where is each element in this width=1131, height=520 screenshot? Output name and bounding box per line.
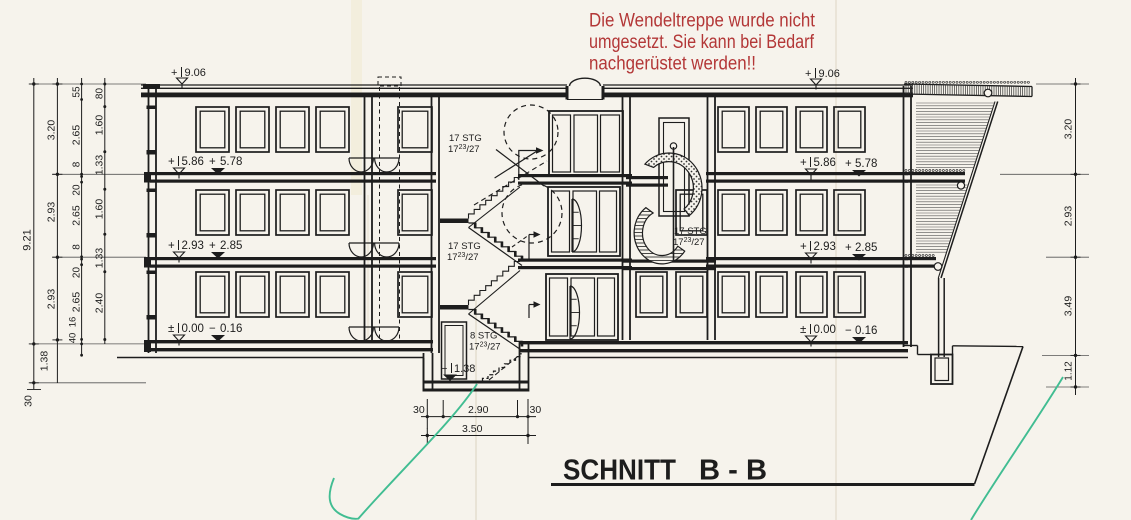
svg-text:1.38: 1.38 [39,351,51,372]
svg-text:20: 20 [72,184,83,196]
svg-text:2.93: 2.93 [814,241,836,253]
svg-text:+: + [800,157,807,169]
svg-text:1.60: 1.60 [94,115,106,136]
svg-text:1.38: 1.38 [454,363,475,375]
svg-text:+: + [168,240,175,252]
svg-text:2.93: 2.93 [182,240,204,252]
svg-text:+: + [845,158,852,170]
svg-text:1.60: 1.60 [94,199,106,220]
svg-text:2.90: 2.90 [468,404,489,416]
svg-text:0.16: 0.16 [855,325,877,337]
svg-text:30: 30 [530,404,542,416]
svg-text:0.16: 0.16 [220,323,242,335]
svg-text:+: + [845,242,852,254]
svg-text:+: + [209,156,216,168]
svg-text:−: − [845,325,852,337]
svg-text:+: + [209,240,216,252]
svg-text:20: 20 [72,267,83,279]
svg-text:1.33: 1.33 [94,248,106,269]
svg-text:+: + [800,241,807,253]
svg-text:0.00: 0.00 [182,323,204,335]
svg-text:+: + [171,67,177,79]
svg-text:+: + [805,68,811,80]
svg-text:5.78: 5.78 [855,158,877,170]
svg-text:17 STG: 17 STG [449,133,482,144]
svg-text:17 STG: 17 STG [448,241,481,252]
svg-text:2.85: 2.85 [855,242,877,254]
svg-text:5.78: 5.78 [220,156,242,168]
svg-text:2.65: 2.65 [71,205,83,226]
svg-text:9.21: 9.21 [22,229,34,250]
svg-text:16: 16 [68,317,79,328]
svg-text:3.49: 3.49 [1063,296,1075,317]
svg-text:2.85: 2.85 [220,240,242,252]
svg-text:Die Wendeltreppe wurde nicht: Die Wendeltreppe wurde nicht [589,11,816,32]
svg-text:umgesetzt. Sie kann bei Bedarf: umgesetzt. Sie kann bei Bedarf [589,32,815,53]
svg-text:SCHNITT: SCHNITT [563,455,676,487]
svg-text:1.12: 1.12 [1064,361,1075,381]
svg-text:2.65: 2.65 [71,125,83,146]
svg-text:±: ± [168,323,174,335]
svg-text:8: 8 [72,244,83,250]
svg-text:2.93: 2.93 [46,202,58,223]
svg-text:3.20: 3.20 [1063,119,1075,140]
svg-text:80: 80 [95,88,106,100]
svg-text:40: 40 [68,333,79,344]
svg-text:5.86: 5.86 [814,157,836,169]
svg-text:3.50: 3.50 [462,423,483,435]
svg-text:2.93: 2.93 [1063,206,1075,227]
svg-text:30: 30 [413,404,425,416]
svg-text:9.06: 9.06 [185,67,206,79]
svg-text:5.86: 5.86 [182,156,204,168]
svg-text:17 STG: 17 STG [674,226,707,237]
svg-text:0.00: 0.00 [814,324,836,336]
svg-text:±: ± [800,324,806,336]
svg-text:8: 8 [72,161,83,167]
svg-text:30: 30 [23,395,35,407]
svg-text:+: + [168,156,175,168]
svg-text:3.20: 3.20 [46,120,58,141]
svg-text:−: − [441,363,447,375]
svg-text:2.93: 2.93 [46,289,58,310]
svg-text:−: − [209,323,216,335]
svg-text:9.06: 9.06 [819,68,840,80]
svg-text:8 STG: 8 STG [470,331,497,342]
svg-text:nachgerüstet werden!!: nachgerüstet werden!! [589,54,756,75]
svg-text:B - B: B - B [699,455,767,487]
svg-text:1.33: 1.33 [94,155,106,176]
svg-text:2.65: 2.65 [71,292,83,313]
svg-text:2.40: 2.40 [94,293,106,314]
svg-text:55: 55 [72,86,83,98]
